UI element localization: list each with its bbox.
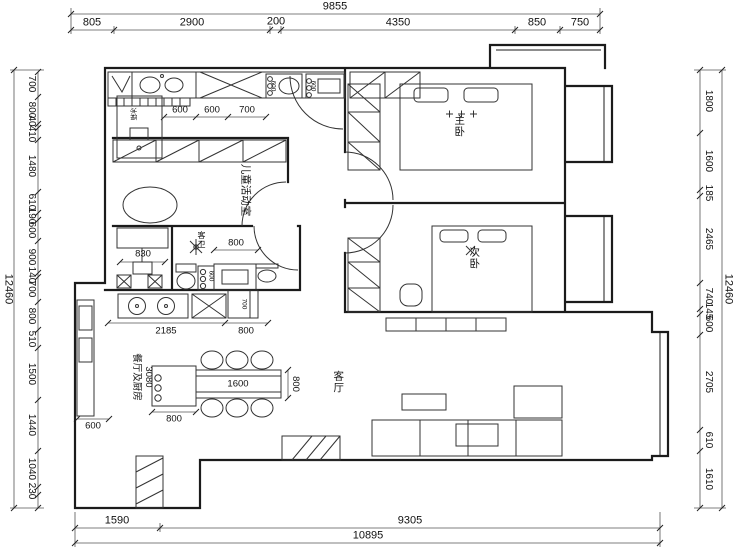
dim-top-3: 4350 (386, 18, 410, 29)
dim-bath: 800 (228, 238, 244, 248)
dim-left-16: 230 (26, 483, 36, 500)
dim-sideboard: 800 (166, 414, 182, 424)
shoe-cabinet (282, 436, 340, 460)
dim-right-7: 2705 (703, 371, 713, 393)
master-wardrobe (348, 84, 380, 170)
dim-washer: 600 (207, 271, 214, 282)
children-wardrobe (113, 140, 286, 162)
wardrobe-top (350, 72, 420, 98)
dim-appliance-b: 600 (309, 81, 316, 92)
dim-top-1: 2900 (180, 18, 204, 29)
window-glazing (496, 50, 660, 456)
dim-desk: 830 (135, 249, 151, 259)
dim-right-2: 185 (703, 185, 713, 202)
room-label-guest-bath: 客卫 (197, 231, 205, 249)
room-label-second-bedroom: 次卧 (469, 247, 480, 270)
dim-bottom-1: 9305 (398, 516, 422, 527)
dim-dining-depth: 3080 (143, 366, 153, 387)
floor-plan: 9855 805 2900 200 4350 850 750 12460 700… (0, 0, 740, 555)
dim-left-13: 1500 (26, 363, 36, 385)
small-hatch-boxes (117, 275, 162, 288)
dim-kitchen-end: 800 (238, 326, 254, 336)
dim-counter-a: 600 (172, 105, 188, 115)
pillow-icon (464, 88, 498, 102)
label-fridge: 冰箱 (129, 108, 136, 121)
dim-left-11: 800 (26, 308, 36, 325)
door-arcs (242, 76, 393, 270)
dim-bottom-total: 10895 (353, 531, 384, 542)
washbasin-icon (256, 264, 278, 268)
dim-right-0: 1800 (703, 90, 713, 112)
coffee-table (402, 394, 446, 410)
dim-left-8: 900 (26, 249, 36, 266)
sink-icon (140, 77, 160, 93)
room-label-dining-kitchen: 餐厅及厨房 (131, 353, 141, 401)
dim-left-15: 1040 (26, 458, 36, 480)
dim-left-total: 12460 (3, 274, 14, 305)
dim-top-2: 200 (267, 17, 285, 28)
tv-cabinet (386, 318, 506, 331)
dim-right-6: 600 (703, 316, 713, 333)
dim-right-total: 12460 (723, 274, 734, 305)
faucet-icon (161, 75, 164, 78)
dim-left-12: 510 (26, 331, 36, 348)
hatched-cabinet (200, 72, 262, 98)
dim-left-7: 600 (26, 222, 36, 239)
dim-top-4: 850 (528, 18, 546, 29)
dim-top-5: 750 (571, 18, 589, 29)
dim-appliance-a: 600 (269, 81, 276, 92)
hatched-cabinet (192, 294, 226, 318)
pillow-icon (478, 230, 506, 242)
pillow-icon (414, 88, 448, 102)
dim-left-4: 1480 (26, 155, 36, 177)
dim-left-14: 1440 (26, 414, 36, 436)
dim-box: 700 (240, 299, 247, 310)
dining-sideboard (152, 366, 196, 406)
dim-right-8: 610 (703, 432, 713, 449)
pillow-icon (440, 230, 468, 242)
dim-bottom-0: 1590 (105, 516, 129, 527)
dim-right-3: 2465 (703, 228, 713, 250)
plan-drawing (0, 0, 740, 555)
stool-icon (400, 284, 422, 306)
dim-counter-b: 600 (204, 105, 220, 115)
dim-counter-c: 700 (239, 105, 255, 115)
toilet-icon (176, 264, 196, 272)
dim-balcony: 600 (85, 421, 101, 431)
washing-machine (214, 264, 256, 290)
dim-top-0: 805 (83, 18, 101, 29)
dim-left-0: 700 (26, 76, 36, 93)
armchair (514, 386, 562, 418)
dim-kitchen-run: 2185 (155, 326, 176, 336)
room-label-children-room: 儿童活动室 (240, 164, 251, 217)
dim-left-3: 410 (26, 126, 36, 143)
drain-rack-icon (112, 76, 130, 92)
rug-icon (123, 187, 177, 223)
dim-right-9: 1610 (703, 468, 713, 490)
hatched-column (136, 456, 163, 508)
dim-top-total: 9855 (323, 2, 347, 13)
room-label-master-bedroom: 主卧 (454, 115, 465, 138)
side-table (456, 424, 498, 446)
dim-table-len: 1600 (227, 379, 248, 389)
oven-icon (279, 78, 299, 94)
room-label-living-room: 客厅 (333, 371, 344, 394)
second-bed (432, 226, 532, 312)
sofa (372, 420, 562, 456)
tall-cabinet (77, 300, 94, 416)
dim-right-1: 1600 (703, 150, 713, 172)
sink-icon (165, 78, 183, 92)
dim-left-10: 700 (26, 281, 36, 298)
dim-table-side: 800 (290, 376, 300, 392)
